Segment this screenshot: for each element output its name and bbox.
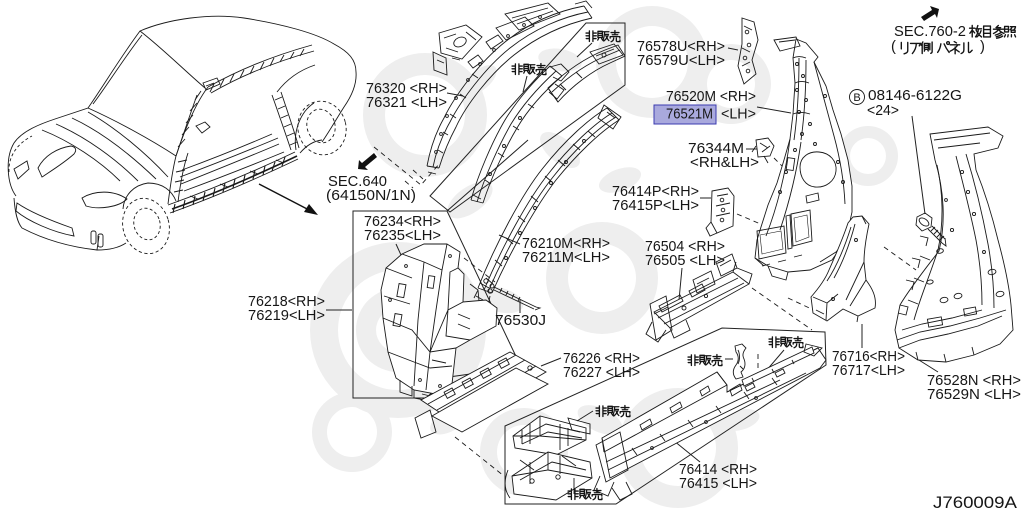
svg-text:76717<LH>: 76717<LH> <box>832 363 905 379</box>
svg-text:B: B <box>853 92 860 104</box>
svg-text:(: ( <box>891 39 896 55</box>
svg-text:76235<LH>: 76235<LH> <box>364 228 441 244</box>
svg-text:76530J: 76530J <box>495 313 546 329</box>
svg-text:(64150N/1N): (64150N/1N) <box>326 188 416 204</box>
svg-text:76505 <LH>: 76505 <LH> <box>645 253 725 269</box>
svg-text:76415P<LH>: 76415P<LH> <box>612 198 699 214</box>
svg-text:<RH&LH>: <RH&LH> <box>690 155 759 171</box>
svg-text:76579U<LH>: 76579U<LH> <box>637 53 725 69</box>
svg-text:76521M: 76521M <box>666 107 713 123</box>
svg-text:76219<LH>: 76219<LH> <box>248 308 325 324</box>
svg-text:SEC.760-2: SEC.760-2 <box>894 24 966 40</box>
svg-text:76415 <LH>: 76415 <LH> <box>679 476 757 492</box>
svg-text:<LH>: <LH> <box>721 107 756 123</box>
svg-text:76520M <RH>: 76520M <RH> <box>666 89 756 105</box>
svg-text:): ) <box>980 39 985 55</box>
svg-text:76211M<LH>: 76211M<LH> <box>522 250 610 266</box>
svg-text:08146-6122G: 08146-6122G <box>868 88 962 104</box>
svg-text:<24>: <24> <box>867 103 899 119</box>
svg-text:76529N <LH>: 76529N <LH> <box>927 387 1021 403</box>
svg-text:76227 <LH>: 76227 <LH> <box>563 365 640 381</box>
svg-text:J760009A: J760009A <box>933 494 1017 510</box>
svg-text:76321 <LH>: 76321 <LH> <box>366 95 447 111</box>
